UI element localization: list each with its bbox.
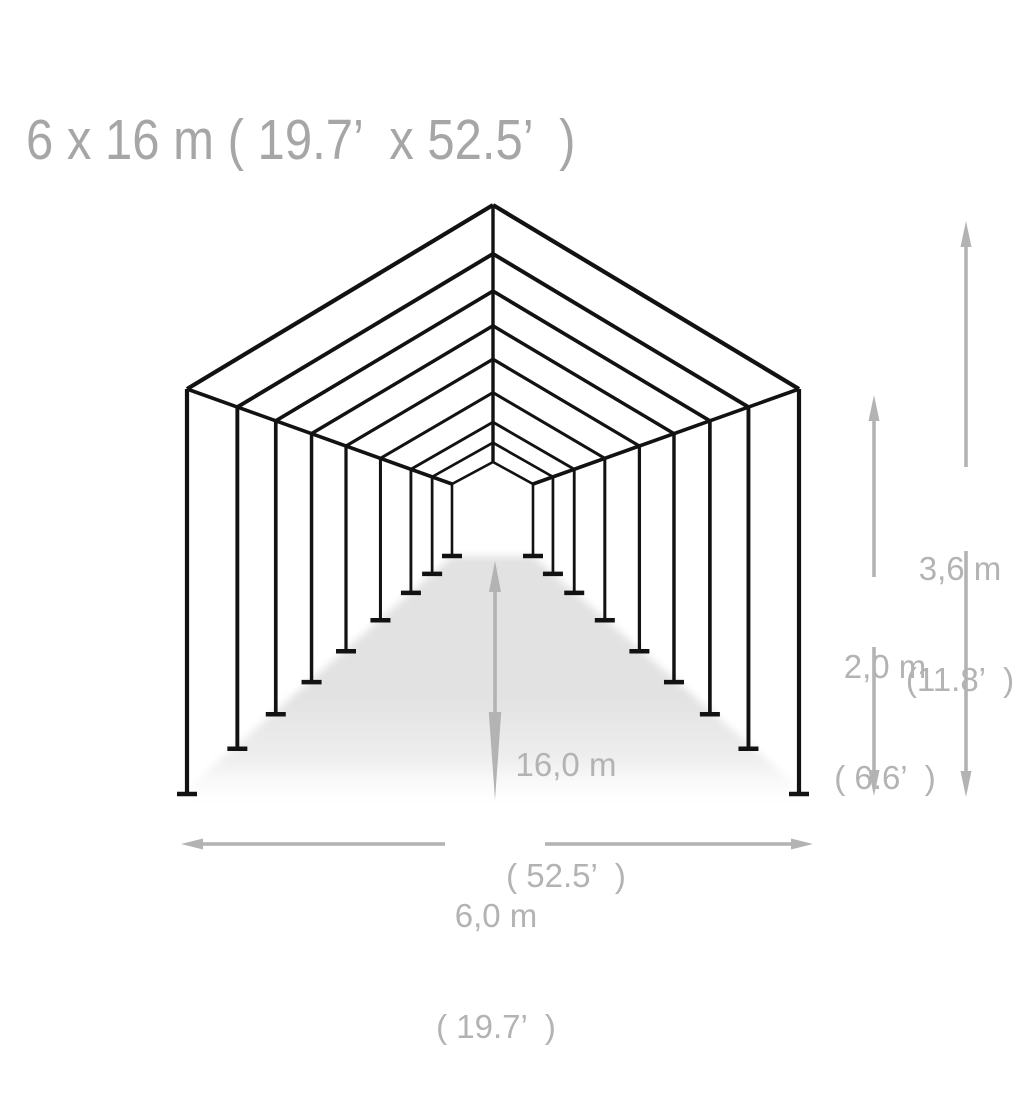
- size-title: 6 x 16 m ( 19.7’ x 52.5’ ): [26, 112, 575, 169]
- length-metric: 16,0 m: [506, 746, 626, 783]
- width-metric: 6,0 m: [436, 897, 556, 934]
- arrow-up-icon: [961, 221, 972, 247]
- side-height-imperial: ( 6.6’ ): [834, 759, 935, 796]
- arrow-up-icon: [869, 395, 880, 421]
- side-height-metric: 2,0 m: [834, 648, 935, 685]
- width-imperial: ( 19.7’ ): [436, 1008, 556, 1045]
- arrow-right-icon: [791, 839, 813, 850]
- side-height-label: 2,0 m ( 6.6’ ): [834, 574, 935, 870]
- arrow-down-icon: [961, 771, 972, 797]
- arrow-left-icon: [181, 839, 203, 850]
- product-dimension-diagram: 6 x 16 m ( 19.7’ x 52.5’ ) 3,6 m (11.8’ …: [0, 0, 1024, 1024]
- width-label: 6,0 m ( 19.7’ ): [436, 823, 556, 1119]
